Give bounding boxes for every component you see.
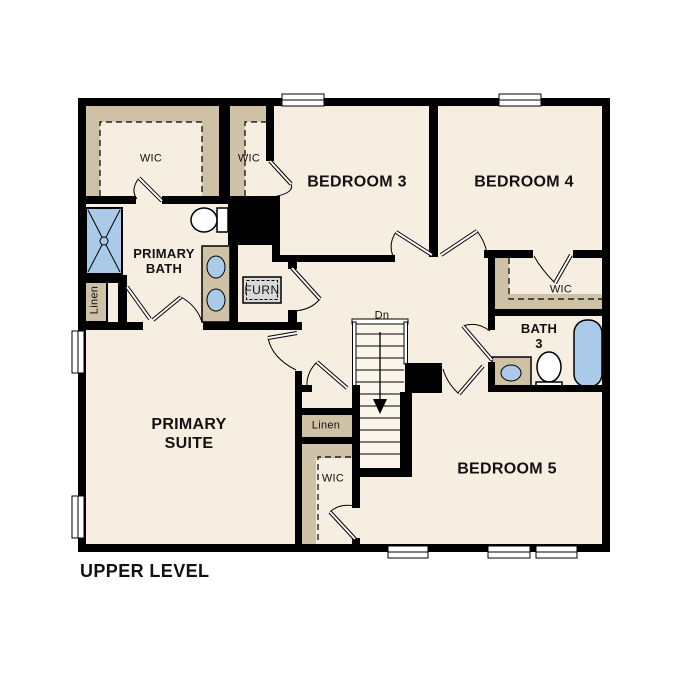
vanity-fixture-bath3 [492,357,531,387]
wall-outer-right [602,98,610,552]
chase-stairs [405,363,442,393]
window-bedroom5-right [536,546,577,558]
room-label-primary-bath: PRIMARY BATH [133,247,195,277]
room-label-linen-hall: Linen [312,419,340,432]
room-label-bedroom3-wic: WIC [238,152,260,165]
stair-left-rail [353,322,357,386]
stair-right-rail [404,322,408,364]
bathtub-fixture [574,320,602,387]
room-label-linen-left: Linen [88,286,101,314]
room-label-bedroom4: BEDROOM 4 [474,172,574,191]
floor-plan: WIC WIC BEDROOM 3 BEDROOM 4 PRIMARY BATH… [0,0,687,687]
window-bedroom5-mid [488,546,530,558]
floor-plan-drawing [0,0,687,687]
window-bedroom3 [282,94,324,106]
label-stairs-down: Dn [375,309,390,322]
sink-fixture-2 [207,289,225,311]
room-label-primary-suite: PRIMARY SUITE [151,415,226,453]
bedroom4-wic-shelf-bottom [495,294,602,309]
window-bedroom4 [499,94,541,106]
window-bedroom5-left [388,546,428,558]
bedroom5-wic-shelf-top [302,444,352,458]
chase-upper [228,196,272,245]
window-primary-suite-upper [72,331,84,373]
room-label-bath3: BATH 3 [521,322,557,352]
label-furnace: FURN [244,283,279,297]
room-label-primary-wic: WIC [140,152,162,165]
room-label-bedroom3: BEDROOM 3 [307,172,407,191]
room-label-bedroom4-wic: WIC [550,283,572,296]
toilet-fixture-primary [191,208,228,232]
plan-title: UPPER LEVEL [80,561,209,582]
window-primary-suite-lower [72,496,84,538]
sink-fixture-1 [207,256,225,278]
shower-fixture [86,208,122,274]
vanity-fixture-primary [202,246,230,322]
room-label-bedroom5-wic: WIC [322,472,344,485]
stairs [352,319,408,468]
room-label-bedroom5: BEDROOM 5 [457,459,557,478]
sink-fixture-3 [501,365,521,381]
bedroom5-wic-shelf-left [302,444,316,545]
